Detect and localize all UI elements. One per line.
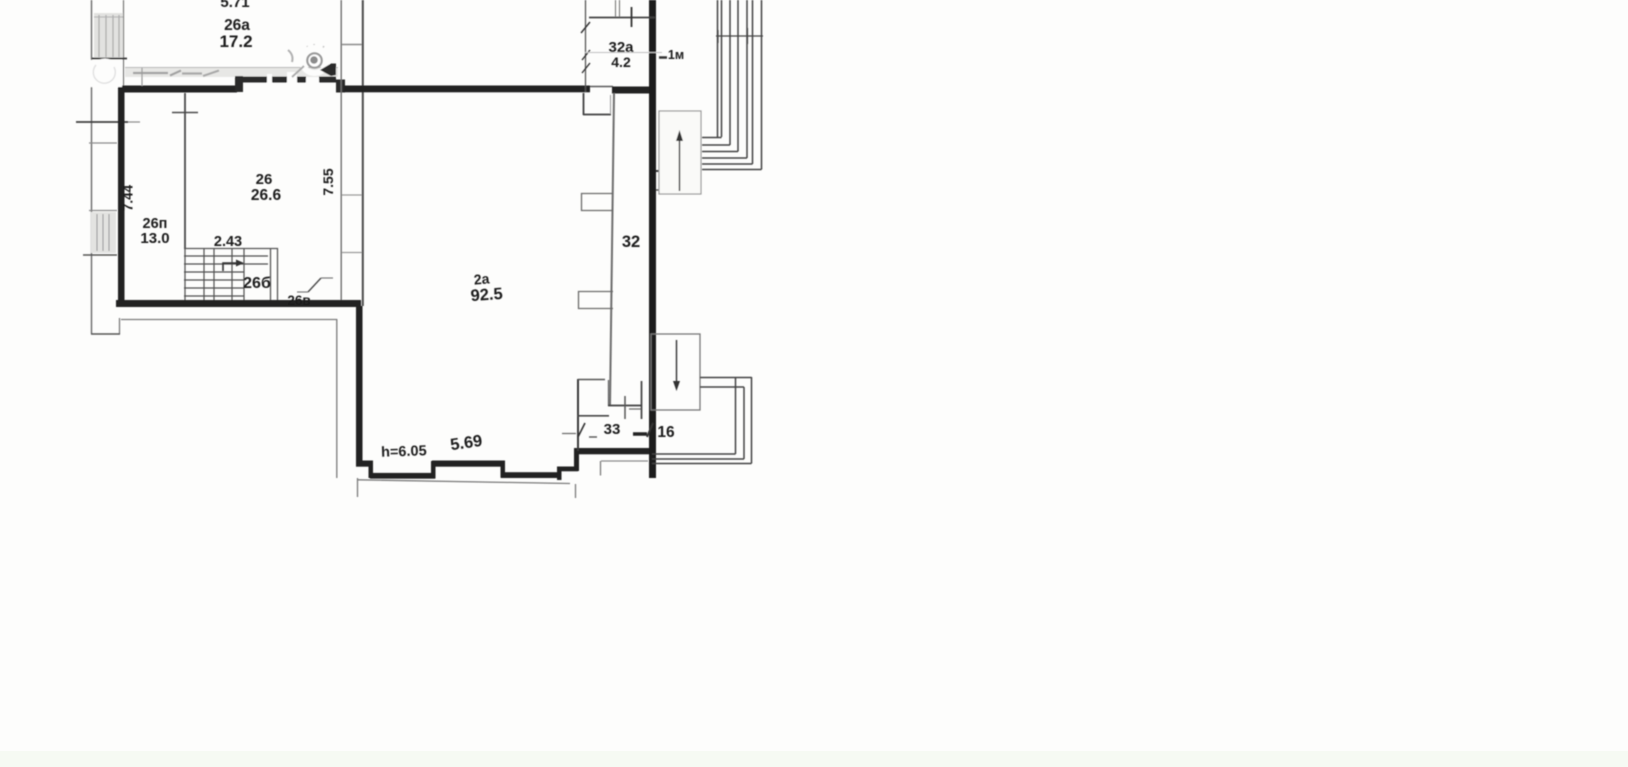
svg-text:26в: 26в — [287, 293, 310, 308]
svg-text:7.55: 7.55 — [320, 168, 336, 195]
svg-text:17.2: 17.2 — [219, 32, 252, 51]
svg-text:16: 16 — [657, 424, 675, 441]
svg-text:32: 32 — [622, 233, 640, 251]
svg-text:33: 33 — [604, 421, 621, 438]
svg-text:13.0: 13.0 — [140, 230, 169, 247]
svg-text:26б: 26б — [243, 275, 271, 292]
svg-text:5.71: 5.71 — [220, 0, 249, 11]
svg-text:4.2: 4.2 — [611, 54, 631, 70]
svg-text:2.43: 2.43 — [214, 234, 242, 250]
svg-text:7.44: 7.44 — [121, 184, 136, 211]
svg-text:26.6: 26.6 — [251, 187, 282, 204]
svg-text:26: 26 — [256, 171, 273, 188]
svg-text:1м: 1м — [668, 48, 684, 62]
svg-text:h=6.05: h=6.05 — [381, 443, 427, 461]
svg-text:92.5: 92.5 — [470, 285, 503, 305]
